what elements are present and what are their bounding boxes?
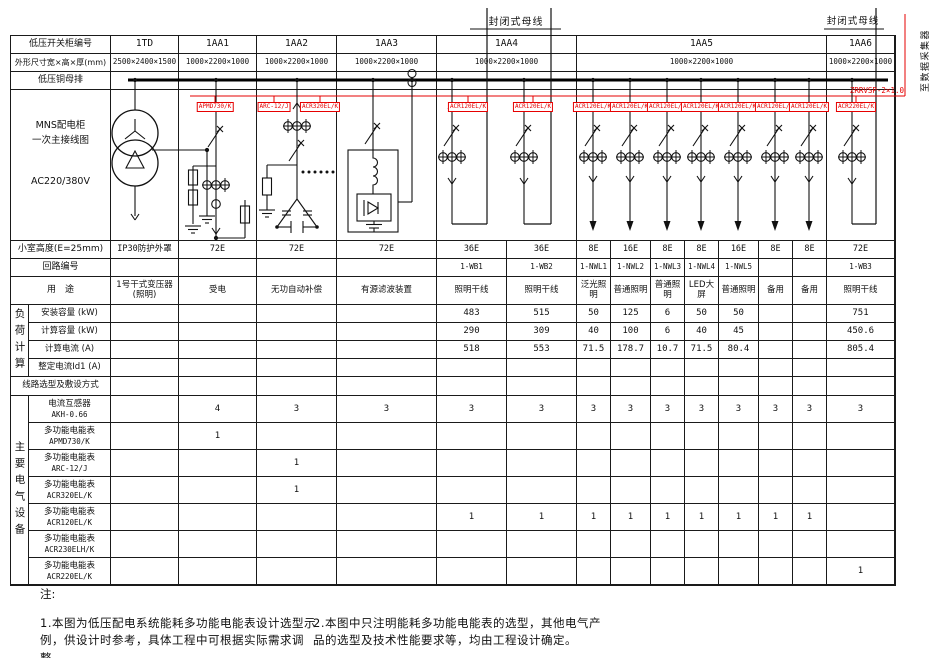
equipment-count (257, 558, 337, 585)
equipment-count: 3 (337, 396, 437, 423)
meter-tag: ACR120EL/K (789, 102, 829, 112)
equipment-count (111, 558, 179, 585)
chamber-value: 72E (179, 241, 257, 259)
equipment-count (337, 450, 437, 477)
line-select-cell (651, 377, 685, 396)
cabinet-id: 1AA2 (257, 36, 337, 54)
equipment-count: 1 (507, 504, 577, 531)
cabinet-id: 1AA6 (827, 36, 895, 54)
load-value (111, 341, 179, 359)
cabinet-id: 1TD (111, 36, 179, 54)
purpose-value: 备用 (759, 277, 793, 305)
schematic-label-line: 一次主接线图 (32, 133, 89, 148)
load-value (793, 341, 827, 359)
equipment-count (685, 450, 719, 477)
circuit-number: 1-WB2 (507, 259, 577, 277)
equipment-model: ARC-12/J (51, 464, 87, 473)
equipment-count (611, 450, 651, 477)
meter-tag: ACR320EL/K (300, 102, 340, 112)
load-value (651, 359, 685, 377)
line-select-cell (759, 377, 793, 396)
equipment-count (651, 477, 685, 504)
equipment-model: ACR220EL/K (47, 572, 92, 581)
purpose-value: 备用 (793, 277, 827, 305)
cabinet-dimension: 2500×2400×1500 (111, 54, 179, 72)
chamber-value: 36E (507, 241, 577, 259)
load-value (759, 359, 793, 377)
equipment-count (793, 531, 827, 558)
schematic-label-line: AC220/380V (31, 174, 90, 189)
equipment-count (611, 531, 651, 558)
equipment-count (685, 531, 719, 558)
equipment-count (111, 531, 179, 558)
equipment-count (337, 504, 437, 531)
line-select-cell (257, 377, 337, 396)
equipment-count (507, 558, 577, 585)
equipment-count (685, 558, 719, 585)
load-value: 71.5 (685, 341, 719, 359)
circuit-number: 1-NWL2 (611, 259, 651, 277)
meter-tag: ARC-12/J (258, 102, 291, 112)
equipment-name: 多功能电能表 (44, 426, 95, 436)
meter-tag: ACR120EL/K (718, 102, 758, 112)
load-value (179, 305, 257, 323)
equipment-count: 3 (793, 396, 827, 423)
load-value: 6 (651, 323, 685, 341)
equipment-count (437, 477, 507, 504)
cabinet-id: 1AA3 (337, 36, 437, 54)
circuit-number (111, 259, 179, 277)
purpose-value: 普通照明 (719, 277, 759, 305)
equipment-model: ACR320EL/K (47, 491, 92, 500)
equipment-count: 1 (759, 504, 793, 531)
load-value (111, 359, 179, 377)
meter-tag: ACR120EL/K (448, 102, 488, 112)
equipment-count (437, 558, 507, 585)
load-value: 50 (577, 305, 611, 323)
load-value: 10.7 (651, 341, 685, 359)
busbar-cell (257, 72, 337, 90)
load-value (337, 359, 437, 377)
line-select-cell (437, 377, 507, 396)
circuit-number: 1-WB1 (437, 259, 507, 277)
circuit-number: 1-NWL5 (719, 259, 759, 277)
meter-tag: ACR220EL/K (836, 102, 876, 112)
line-select-cell (507, 377, 577, 396)
circuit-number (337, 259, 437, 277)
note-2: 2.本图中只注明能耗多功能电能表的选型，其他电气产品的选型及技术性能要求等，均由… (313, 615, 605, 651)
equipment-count (651, 558, 685, 585)
meter-tag: ACR120EL/K (573, 102, 613, 112)
schematic-cell (337, 90, 437, 241)
equipment-row-label: 多功能电能表ACR220EL/K (29, 558, 111, 585)
equipment-count (685, 477, 719, 504)
equipment-count: 3 (577, 396, 611, 423)
equipment-count (507, 450, 577, 477)
schematic-label: MNS配电柜一次主接线图AC220/380V (11, 90, 111, 241)
equipment-count (337, 558, 437, 585)
chamber-value: 8E (651, 241, 685, 259)
equipment-count (111, 477, 179, 504)
equipment-count (651, 531, 685, 558)
equipment-row-label: 多功能电能表ACR320EL/K (29, 477, 111, 504)
circuit-number (793, 259, 827, 277)
signal-cable-tag: ZRRVSP-2×1.0 (838, 86, 904, 95)
load-value: 805.4 (827, 341, 895, 359)
load-row-label: 整定电流Id1 (A) (29, 359, 111, 377)
equipment-count (507, 531, 577, 558)
load-value (337, 305, 437, 323)
equipment-count (437, 423, 507, 450)
load-value (257, 341, 337, 359)
schematic-cell (437, 90, 577, 241)
equipment-count: 1 (437, 504, 507, 531)
cabinet-dimension: 1000×2200×1000 (179, 54, 257, 72)
load-value (257, 359, 337, 377)
load-value: 290 (437, 323, 507, 341)
equipment-count (719, 531, 759, 558)
circuit-number: 1-WB3 (827, 259, 895, 277)
row-label-purpose: 用 途 (11, 277, 111, 305)
equipment-count: 1 (611, 504, 651, 531)
line-select-cell (179, 377, 257, 396)
equipment-row-label: 多功能电能表ARC-12/J (29, 450, 111, 477)
equipment-count (827, 423, 895, 450)
equipment-model: AKH-0.66 (51, 410, 87, 419)
cabinet-dimension: 1000×2200×1000 (257, 54, 337, 72)
section-label-equipment: 主要电气设备 (11, 396, 29, 585)
equipment-count: 1 (257, 477, 337, 504)
line-select-cell (827, 377, 895, 396)
row-label-line-select: 线路选型及敷设方式 (11, 377, 111, 396)
equipment-count (577, 477, 611, 504)
schematic-cell (827, 90, 895, 241)
equipment-count (179, 477, 257, 504)
equipment-model: ACR230ELH/K (45, 545, 95, 554)
load-value: 40 (577, 323, 611, 341)
equipment-count (759, 423, 793, 450)
busbar-cell (337, 72, 437, 90)
equipment-count (719, 477, 759, 504)
equipment-count (337, 423, 437, 450)
equipment-count (437, 450, 507, 477)
equipment-count: 3 (437, 396, 507, 423)
load-value: 100 (611, 323, 651, 341)
busway-label-right: 封闭式母线 (823, 13, 883, 27)
equipment-count (685, 423, 719, 450)
equipment-count (179, 450, 257, 477)
equipment-count: 3 (507, 396, 577, 423)
equipment-count (827, 477, 895, 504)
line-select-cell (719, 377, 759, 396)
drawing-canvas: 封闭式母线 封闭式母线 至数据采集器 ZRRVSP-2×1.0 低压开关柜编号1… (0, 0, 931, 658)
equipment-count (179, 531, 257, 558)
equipment-count (759, 531, 793, 558)
meter-tag: ACR120EL/K (513, 102, 553, 112)
cabinet-id: 1AA1 (179, 36, 257, 54)
equipment-count (577, 558, 611, 585)
load-value (111, 305, 179, 323)
line-select-cell (577, 377, 611, 396)
load-value (337, 341, 437, 359)
purpose-value: 普通照明 (651, 277, 685, 305)
cabinet-id: 1AA4 (437, 36, 577, 54)
note-1: 1.本图为低压配电系统能耗多功能电能表设计选型示例，供设计时参考，具体工程中可根… (40, 615, 320, 658)
equipment-count: 3 (759, 396, 793, 423)
equipment-name: 多功能电能表 (44, 480, 95, 490)
equipment-count (793, 477, 827, 504)
chamber-value: 36E (437, 241, 507, 259)
line-select-cell (793, 377, 827, 396)
equipment-count (651, 423, 685, 450)
load-value (793, 359, 827, 377)
load-value (611, 359, 651, 377)
cabinet-id: 1AA5 (577, 36, 827, 54)
equipment-name: 电流互感器 (48, 399, 91, 409)
load-value (179, 341, 257, 359)
equipment-count (437, 531, 507, 558)
load-value (337, 323, 437, 341)
load-value (437, 359, 507, 377)
equipment-count: 3 (827, 396, 895, 423)
line-select-cell (685, 377, 719, 396)
circuit-number: 1-NWL4 (685, 259, 719, 277)
load-value (179, 359, 257, 377)
load-value: 751 (827, 305, 895, 323)
chamber-value: 16E (719, 241, 759, 259)
equipment-count (111, 450, 179, 477)
purpose-value: 普通照明 (611, 277, 651, 305)
load-value (685, 359, 719, 377)
load-value (257, 323, 337, 341)
meter-tag: ACR120EL/K (681, 102, 721, 112)
equipment-count (759, 450, 793, 477)
busbar-cell (577, 72, 827, 90)
chamber-value: 8E (685, 241, 719, 259)
load-value: 80.4 (719, 341, 759, 359)
equipment-count (827, 504, 895, 531)
notes-heading: 注: (40, 586, 55, 602)
equipment-count (611, 477, 651, 504)
schematic-cell (111, 90, 179, 241)
chamber-value: 8E (793, 241, 827, 259)
purpose-value: 有源滤波装置 (337, 277, 437, 305)
equipment-name: 多功能电能表 (44, 561, 95, 571)
equipment-count: 1 (179, 423, 257, 450)
to-data-collector-label: 至数据采集器 (918, 29, 931, 92)
load-value: 483 (437, 305, 507, 323)
chamber-value: 72E (257, 241, 337, 259)
row-label-cabinet-no: 低压开关柜编号 (11, 36, 111, 54)
load-value: 50 (719, 305, 759, 323)
chamber-value: 72E (827, 241, 895, 259)
line-select-cell (337, 377, 437, 396)
schematic-label-line: MNS配电柜 (36, 118, 86, 133)
cabinet-dimension: 1000×2200×1000 (577, 54, 827, 72)
purpose-value: 照明干线 (827, 277, 895, 305)
chamber-value: 16E (611, 241, 651, 259)
load-value: 50 (685, 305, 719, 323)
equipment-count: 1 (719, 504, 759, 531)
equipment-count (793, 558, 827, 585)
load-value: 518 (437, 341, 507, 359)
equipment-count (337, 477, 437, 504)
equipment-count (827, 450, 895, 477)
equipment-count (179, 504, 257, 531)
load-row-label: 计算容量 (kW) (29, 323, 111, 341)
equipment-count: 1 (827, 558, 895, 585)
load-value: 40 (685, 323, 719, 341)
equipment-row-label: 多功能电能表APMD730/K (29, 423, 111, 450)
load-row-label: 安装容量 (kW) (29, 305, 111, 323)
row-label-circuit: 回路编号 (11, 259, 111, 277)
chamber-value: 8E (577, 241, 611, 259)
purpose-value: 1号干式变压器(照明) (111, 277, 179, 305)
chamber-value: 8E (759, 241, 793, 259)
busbar-cell (437, 72, 577, 90)
purpose-value: 照明干线 (437, 277, 507, 305)
load-value (111, 323, 179, 341)
equipment-count (759, 477, 793, 504)
equipment-count (577, 531, 611, 558)
equipment-count (257, 423, 337, 450)
row-label-chamber: 小室高度(E=25mm) (11, 241, 111, 259)
equipment-model: APMD730/K (49, 437, 90, 446)
equipment-count (337, 531, 437, 558)
load-value (507, 359, 577, 377)
equipment-count: 1 (577, 504, 611, 531)
equipment-count (651, 450, 685, 477)
equipment-count (507, 477, 577, 504)
load-value (577, 359, 611, 377)
equipment-count (111, 423, 179, 450)
equipment-count: 3 (685, 396, 719, 423)
equipment-model: ACR120EL/K (47, 518, 92, 527)
purpose-value: 照明干线 (507, 277, 577, 305)
load-value (759, 323, 793, 341)
row-label-dimensions: 外形尺寸宽×高×厚(mm) (11, 54, 111, 72)
row-label-busbar: 低压铜母排 (11, 72, 111, 90)
busbar-cell (179, 72, 257, 90)
equipment-count (719, 558, 759, 585)
equipment-count: 1 (257, 450, 337, 477)
load-value: 309 (507, 323, 577, 341)
equipment-count (719, 423, 759, 450)
chamber-value: IP30防护外罩 (111, 241, 179, 259)
load-value: 125 (611, 305, 651, 323)
equipment-count: 3 (719, 396, 759, 423)
purpose-value: LED大屏 (685, 277, 719, 305)
circuit-number: 1-NWL3 (651, 259, 685, 277)
cabinet-dimension: 1000×2200×1000 (437, 54, 577, 72)
load-value (759, 341, 793, 359)
cabinet-dimension: 1000×2200×1000 (827, 54, 895, 72)
circuit-number: 1-NWL1 (577, 259, 611, 277)
equipment-count (719, 450, 759, 477)
equipment-count (793, 423, 827, 450)
equipment-name: 多功能电能表 (44, 453, 95, 463)
equipment-count (507, 423, 577, 450)
equipment-name: 多功能电能表 (44, 507, 95, 517)
load-value (179, 323, 257, 341)
busway-label-left: 封闭式母线 (472, 13, 560, 28)
equipment-count (257, 504, 337, 531)
schematic-cell (179, 90, 257, 241)
section-label-load: 负荷计算 (11, 305, 29, 377)
load-value: 515 (507, 305, 577, 323)
load-row-label: 计算电流 (A) (29, 341, 111, 359)
equipment-row-label: 电流互感器AKH-0.66 (29, 396, 111, 423)
equipment-count (111, 504, 179, 531)
schematic-cell (257, 90, 337, 241)
equipment-row-label: 多功能电能表ACR230ELH/K (29, 531, 111, 558)
equipment-row-label: 多功能电能表ACR120EL/K (29, 504, 111, 531)
equipment-count: 3 (257, 396, 337, 423)
equipment-count (611, 423, 651, 450)
circuit-number (179, 259, 257, 277)
specification-table: 低压开关柜编号1TD1AA11AA21AA31AA41AA51AA6外形尺寸宽×… (10, 35, 896, 586)
equipment-count: 1 (685, 504, 719, 531)
equipment-count (577, 423, 611, 450)
equipment-count (111, 396, 179, 423)
schematic-cell (577, 90, 827, 241)
load-value (793, 323, 827, 341)
equipment-count (827, 531, 895, 558)
busbar-cell (111, 72, 179, 90)
equipment-count: 1 (793, 504, 827, 531)
load-value (793, 305, 827, 323)
line-select-cell (111, 377, 179, 396)
equipment-count: 3 (611, 396, 651, 423)
load-value (257, 305, 337, 323)
equipment-count: 4 (179, 396, 257, 423)
load-value: 450.6 (827, 323, 895, 341)
equipment-count (179, 558, 257, 585)
meter-tag: APMD730/K (197, 102, 234, 112)
equipment-count (577, 450, 611, 477)
load-value: 178.7 (611, 341, 651, 359)
purpose-value: 泛光照明 (577, 277, 611, 305)
load-value (827, 359, 895, 377)
circuit-number (257, 259, 337, 277)
equipment-name: 多功能电能表 (44, 534, 95, 544)
circuit-number (759, 259, 793, 277)
chamber-value: 72E (337, 241, 437, 259)
equipment-count (611, 558, 651, 585)
line-select-cell (611, 377, 651, 396)
load-value (719, 359, 759, 377)
load-value: 6 (651, 305, 685, 323)
equipment-count (257, 531, 337, 558)
equipment-count: 1 (651, 504, 685, 531)
purpose-value: 无功自动补偿 (257, 277, 337, 305)
load-value: 71.5 (577, 341, 611, 359)
load-value: 45 (719, 323, 759, 341)
load-value: 553 (507, 341, 577, 359)
cabinet-dimension: 1000×2200×1000 (337, 54, 437, 72)
meter-tag: ACR120EL/K (610, 102, 650, 112)
equipment-count: 3 (651, 396, 685, 423)
load-value (759, 305, 793, 323)
equipment-count (759, 558, 793, 585)
purpose-value: 受电 (179, 277, 257, 305)
equipment-count (793, 450, 827, 477)
